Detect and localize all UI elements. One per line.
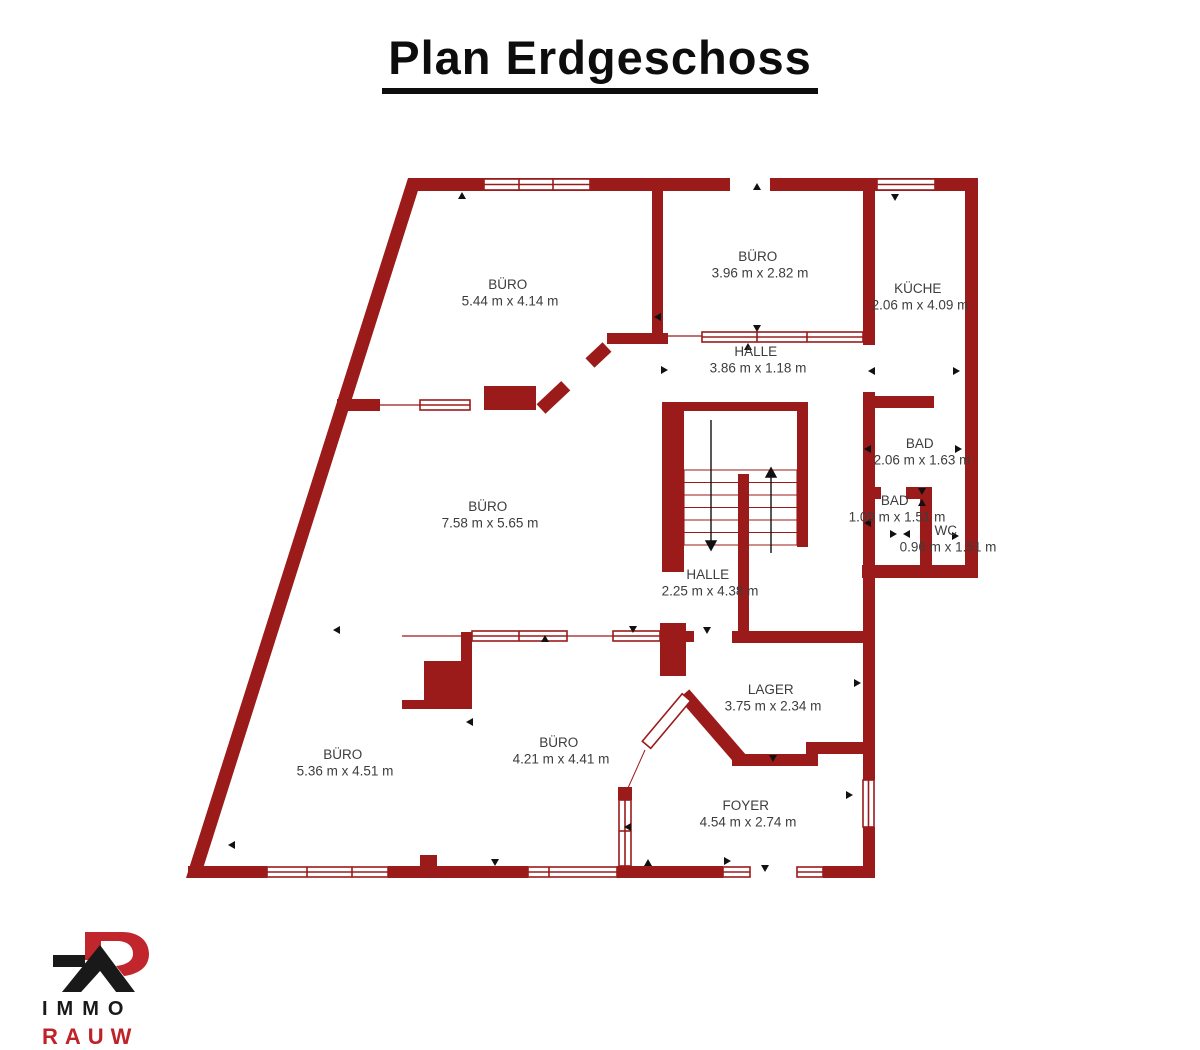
room-label-wc: WC 0.96 m x 1.51 m [900,522,997,555]
wall-lager-top [732,631,863,643]
wall-right-inner-a [863,191,875,345]
logo: IMMO RAUW [42,928,262,1050]
chimney-lower-3 [402,700,424,709]
chimney-lower-2 [424,661,472,709]
window-foyer-right [863,780,874,827]
chimney-upper [484,386,536,410]
window-top-right [877,179,935,190]
wall-stairs-top [684,402,808,411]
window-lower-2 [613,631,660,641]
window-top-left [484,179,590,190]
wall-bottom-2 [388,866,528,878]
room-label-buero-top-left: BÜRO 5.44 m x 4.14 m [462,276,559,309]
room-label-buero-bottom-left: BÜRO 5.36 m x 4.51 m [297,746,394,779]
logo-mark-icon [48,928,158,994]
room-label-foyer: FOYER 4.54 m x 2.74 m [700,797,797,830]
room-label-lager: LAGER 3.75 m x 2.34 m [725,681,822,714]
window-column [619,800,631,866]
wall-stairs-left [662,402,684,572]
wall-top-right [770,178,978,191]
floorplan-drawing: BÜRO 5.44 m x 4.14 m BÜRO 3.96 m x 2.82 … [0,0,1200,1050]
wall-foyer-2 [816,742,864,754]
window-bottom-1 [267,867,388,877]
door-block-bottom [420,855,437,867]
wall-stairs-right [797,402,808,547]
room-label-buero-center: BÜRO 7.58 m x 5.65 m [442,498,539,531]
window-lower-1 [472,631,567,641]
wall-stub-left [337,399,380,411]
window-halle [702,332,863,342]
wall-right-outer [965,178,978,578]
room-label-kueche: KÜCHE 2.06 m x 4.09 m [872,280,969,313]
lager-block-arm [686,631,694,642]
entrance-door [628,694,691,788]
wall-bad-row-1 [863,487,881,499]
wall-bottom-3 [617,866,723,878]
wall-right-inner-c [863,827,875,872]
wall-bottom-4 [823,866,875,878]
wall-stairs-divider [738,474,749,643]
lager-block [660,623,686,676]
window-stub-row [420,400,470,410]
door-swing-line [628,750,645,788]
floorplan-page: Plan Erdgeschoss [0,0,1200,1050]
wall-halle-stub [607,333,668,344]
room-label-buero-top-mid: BÜRO 3.96 m x 2.82 m [712,248,809,281]
diagonal-wall-upper [541,347,607,409]
room-label-halle-top: HALLE 3.86 m x 1.18 m [710,343,807,376]
window-bottom-2 [528,867,617,877]
window-col-cap [618,787,632,800]
window-bottom-4 [797,867,823,877]
window-bottom-3 [723,867,750,877]
wall-kueche-bad [863,396,934,408]
logo-text-immo: IMMO [42,998,262,1021]
door-leaf [642,694,690,749]
logo-text-rauw: RAUW [42,1024,262,1050]
room-label-buero-bottom-mid: BÜRO 4.21 m x 4.41 m [513,734,610,767]
